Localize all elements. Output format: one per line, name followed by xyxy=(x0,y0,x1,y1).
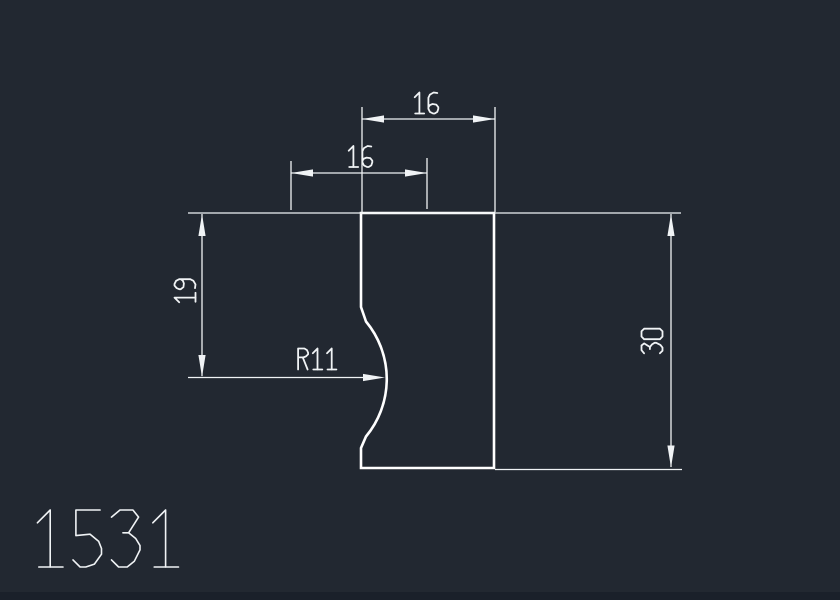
cad-stage xyxy=(0,0,840,600)
canvas-bottom-strip xyxy=(0,592,840,600)
cad-drawing-canvas[interactable] xyxy=(0,0,840,600)
